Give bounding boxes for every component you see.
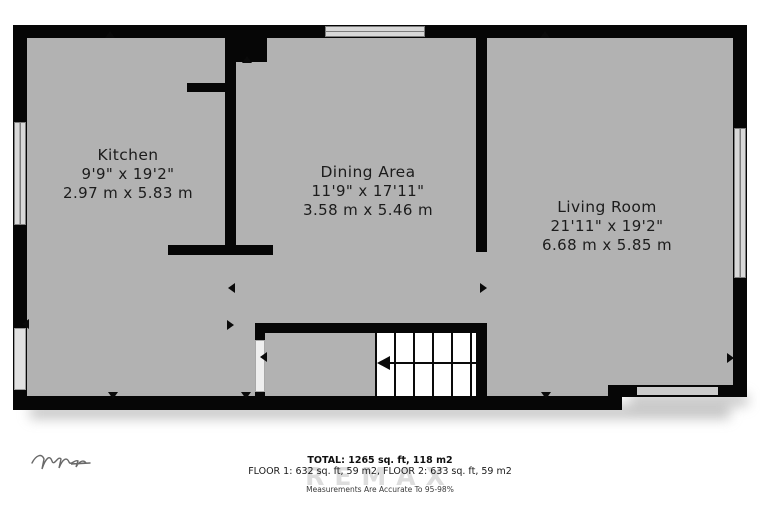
wall-dining-living-divider [476, 38, 487, 252]
window-right-living [734, 128, 746, 278]
direction-marker-icon [480, 283, 487, 293]
window-bottom-living [637, 387, 718, 395]
direction-marker-icon [22, 319, 29, 329]
direction-marker-icon [241, 392, 251, 399]
floor-plan-page: Kitchen 9'9" x 19'2" 2.97 m x 5.83 m Din… [0, 0, 760, 505]
window-left-lower [14, 328, 26, 390]
direction-marker-icon [242, 56, 252, 63]
room-dimensions-metric: 6.68 m x 5.85 m [542, 236, 672, 255]
wall-bottom [13, 396, 622, 410]
wall-stair-top [255, 323, 487, 333]
window-top-dining [325, 26, 425, 37]
direction-marker-icon [227, 320, 234, 330]
room-name: Kitchen [63, 146, 193, 165]
staircase [375, 333, 476, 396]
wall-stair-right [476, 333, 487, 410]
stair-direction-line [387, 362, 476, 364]
direction-marker-icon [541, 392, 551, 399]
room-dimensions-imperial: 9'9" x 19'2" [63, 165, 193, 184]
stair-direction-arrow-icon [377, 356, 390, 370]
room-label-living-room: Living Room 21'11" x 19'2" 6.68 m x 5.85… [542, 198, 672, 255]
direction-marker-icon [108, 392, 118, 399]
room-dimensions-imperial: 11'9" x 17'11" [303, 182, 433, 201]
wall-kitchen-stub [187, 83, 227, 92]
room-name: Dining Area [303, 163, 433, 182]
room-label-kitchen: Kitchen 9'9" x 19'2" 2.97 m x 5.83 m [63, 146, 193, 203]
direction-marker-icon [105, 31, 115, 38]
accuracy-note: Measurements Are Accurate To 95-98% [0, 485, 760, 494]
room-dimensions-metric: 3.58 m x 5.46 m [303, 201, 433, 220]
wall-kitchen-bottom [168, 245, 273, 255]
room-dimensions-imperial: 21'11" x 19'2" [542, 217, 672, 236]
wall-kitchen-dining-divider [225, 38, 236, 255]
room-label-dining-area: Dining Area 11'9" x 17'11" 3.58 m x 5.46… [303, 163, 433, 220]
direction-marker-icon [727, 353, 734, 363]
direction-marker-icon [260, 352, 267, 362]
floor-areas-text: FLOOR 1: 632 sq. ft, 59 m2, FLOOR 2: 633… [0, 466, 760, 477]
room-dimensions-metric: 2.97 m x 5.83 m [63, 184, 193, 203]
direction-marker-icon [540, 31, 550, 38]
room-name: Living Room [542, 198, 672, 217]
door-opening-stairs [255, 340, 265, 392]
direction-marker-icon [228, 283, 235, 293]
total-area-text: TOTAL: 1265 sq. ft, 118 m2 [0, 455, 760, 466]
window-left-kitchen [14, 122, 26, 225]
